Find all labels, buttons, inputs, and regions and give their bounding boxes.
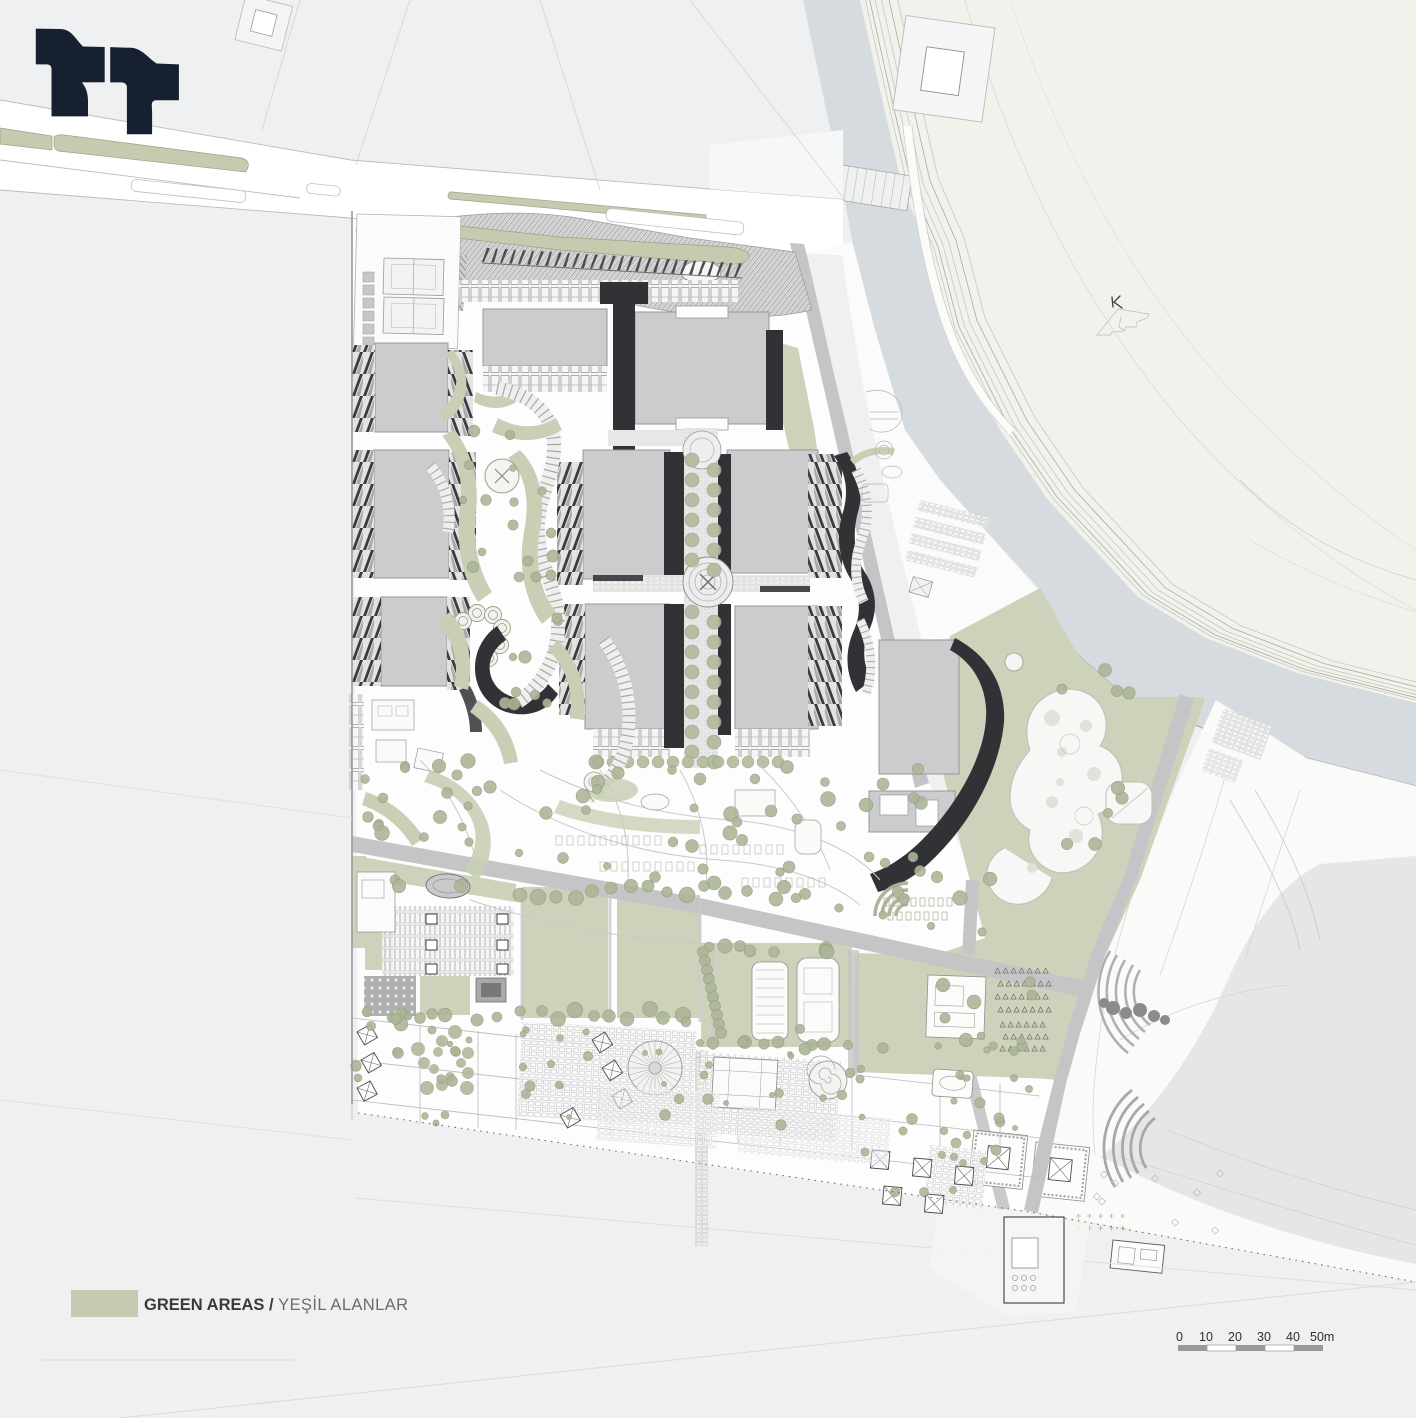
svg-text:50m: 50m bbox=[1310, 1330, 1334, 1344]
svg-text:20: 20 bbox=[1228, 1330, 1242, 1344]
svg-text:40: 40 bbox=[1286, 1330, 1300, 1344]
svg-text:0: 0 bbox=[1176, 1330, 1183, 1344]
svg-text:GREEN AREAS / YEŞİL ALANLAR: GREEN AREAS / YEŞİL ALANLAR bbox=[144, 1295, 408, 1314]
svg-text:30: 30 bbox=[1257, 1330, 1271, 1344]
svg-text:10: 10 bbox=[1199, 1330, 1213, 1344]
